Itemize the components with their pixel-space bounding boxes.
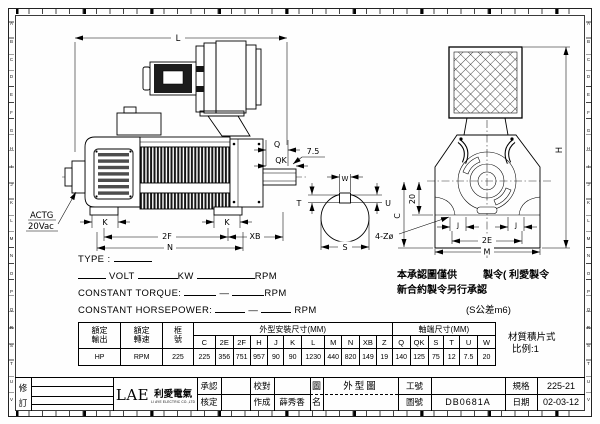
scale-note: 比例:1 <box>512 341 539 355</box>
dim-K-left: K <box>102 218 108 227</box>
col-header: N <box>342 336 360 349</box>
col-header: U <box>460 336 478 349</box>
tacho-label-line1: ACTG <box>30 211 53 221</box>
date-label: 日期 <box>505 395 537 410</box>
dim-2F: 2F <box>162 232 172 241</box>
frame-header: 框號 <box>163 323 194 349</box>
logo-text: LAE <box>116 386 149 404</box>
torque-label: CONSTANT TORQUE: <box>78 288 181 299</box>
type-label: TYPE : <box>78 254 111 265</box>
dim-N: N <box>167 243 173 252</box>
dim-value: 1230 <box>302 349 325 366</box>
dim-value: 75 <box>428 349 444 366</box>
dim-J-left: J <box>456 222 459 230</box>
dim-H: H <box>555 147 565 153</box>
constant-torque-line: CONSTANT TORQUE: — RPM <box>78 287 287 299</box>
spec-value: 225-21 <box>537 379 585 394</box>
dim-value: 356 <box>215 349 233 366</box>
col-header: QK <box>410 336 428 349</box>
dim-value: 20 <box>477 349 495 366</box>
date-value: 02-03-12 <box>537 395 585 410</box>
tacho-label-line2: 20Vac <box>28 222 54 232</box>
col-header: C <box>193 336 215 349</box>
revision-label-bottom: 訂 <box>15 397 31 410</box>
dim-value: 90 <box>268 349 284 366</box>
dim-M: M <box>484 248 491 257</box>
revision-label-top: 修 <box>15 382 31 395</box>
type-line: TYPE : <box>78 253 152 265</box>
dim-value: 957 <box>250 349 268 366</box>
dim-value: 7.5 <box>460 349 478 366</box>
dim-value: 225 <box>193 349 215 366</box>
title-block: 修 訂 LAE 利愛電氣 LI AYE ELECTRIC CO.,LTD 承認 … <box>15 377 585 411</box>
approved-label: 承認 <box>197 379 221 394</box>
dim-W: W <box>342 175 349 183</box>
rated-speed-value: RPM <box>121 349 163 366</box>
col-header: K <box>284 336 302 349</box>
col-header: T <box>444 336 460 349</box>
type-blank <box>114 253 152 262</box>
dim-S: S <box>342 243 347 252</box>
dim-20: 20 <box>408 194 417 204</box>
dim-value: 149 <box>360 349 377 366</box>
dim-value: 90 <box>284 349 302 366</box>
dim-K-right: K <box>224 218 230 227</box>
dim-value: 751 <box>233 349 250 366</box>
dim-7-5: 7.5 <box>307 147 320 156</box>
col-header: XB <box>360 336 377 349</box>
kw-label: KW <box>178 271 194 282</box>
dim-value: 140 <box>392 349 410 366</box>
rpm-label: RPM <box>255 271 277 282</box>
shaft-dims-group-header: 軸端尺寸(MM) <box>392 323 495 336</box>
col-header: L <box>302 336 325 349</box>
dash: — <box>219 288 229 299</box>
spec-label: 規格 <box>505 379 537 394</box>
dim-U: U <box>385 199 391 208</box>
dim-4-Z: 4-Zø <box>375 232 393 241</box>
dim-T: T <box>296 199 302 208</box>
rated-speed-header: 額定轉速 <box>121 323 163 349</box>
dimension-table: 額定輸出 額定轉速 框號 外型安裝尺寸(MM) 軸端尺寸(MM) C 2E 2F… <box>78 322 496 366</box>
made-label: 作成 <box>250 395 274 410</box>
dwg-name-label-bottom: 名 <box>310 395 323 410</box>
rated-output-header: 額定輸出 <box>79 323 121 349</box>
col-header: W <box>477 336 495 349</box>
dwg-name-label-top: 圖 <box>310 379 323 394</box>
outline-dims-group-header: 外型安裝尺寸(MM) <box>193 323 392 336</box>
company-name: 利愛電氣 <box>154 386 192 400</box>
dim-value: 12 <box>444 349 460 366</box>
frame-value: 225 <box>163 349 194 366</box>
company-logo: LAE 利愛電氣 LI AYE ELECTRIC CO.,LTD <box>114 378 197 411</box>
dim-Q: Q <box>274 140 280 149</box>
col-header: Z <box>376 336 392 349</box>
checked-label: 核定 <box>197 395 221 410</box>
dim-2E: 2E <box>482 236 492 245</box>
dwg-no-label: 圖號 <box>398 395 431 410</box>
rated-output-value: HP <box>79 349 121 366</box>
dim-C: C <box>393 213 402 219</box>
drawing-title: 外型圖 <box>323 379 398 394</box>
made-by-value: 薛秀香 <box>274 395 310 410</box>
dim-L: L <box>176 34 181 44</box>
volt-kw-rpm-line: VOLT KW RPM <box>78 270 277 282</box>
shaft-tolerance-note: (S公差m6) <box>466 302 511 316</box>
dim-XB: XB <box>250 232 261 241</box>
horsepower-label: CONSTANT HORSEPOWER: <box>78 305 212 316</box>
side-view: L <box>62 34 306 215</box>
col-header: 2F <box>233 336 250 349</box>
approval-note-line2: 新合約製令另行承認 <box>397 281 487 296</box>
drawing-sheet: ABCDEFGHIJKLMNOPQRSTUV ABCDEFGHIJKLMNOPQ… <box>0 0 600 424</box>
col-header: S <box>428 336 444 349</box>
col-header: 2E <box>215 336 233 349</box>
proofread-label: 校對 <box>250 379 274 394</box>
col-header: Q <box>392 336 410 349</box>
dim-J-right: J <box>514 222 517 230</box>
col-header: M <box>325 336 342 349</box>
company-subtitle: LI AYE ELECTRIC CO.,LTD <box>151 400 195 404</box>
job-no-label: 工號 <box>398 379 431 394</box>
approval-note-line1: 本承認圖僅供製令( 利愛製令 <box>397 266 549 281</box>
dim-value: 820 <box>342 349 360 366</box>
col-header: J <box>268 336 284 349</box>
constant-horsepower-line: CONSTANT HORSEPOWER: — RPM <box>78 304 317 316</box>
end-view: C 20 4-Zø J J 2E <box>375 47 570 258</box>
dwg-no-value: DB0681A <box>431 395 505 410</box>
dim-QK: QK <box>275 156 287 165</box>
dim-value: 19 <box>376 349 392 366</box>
volt-label: VOLT <box>109 271 135 282</box>
dim-value: 125 <box>410 349 428 366</box>
col-header: H <box>250 336 268 349</box>
dim-value: 440 <box>325 349 342 366</box>
job-no-value <box>431 379 505 394</box>
